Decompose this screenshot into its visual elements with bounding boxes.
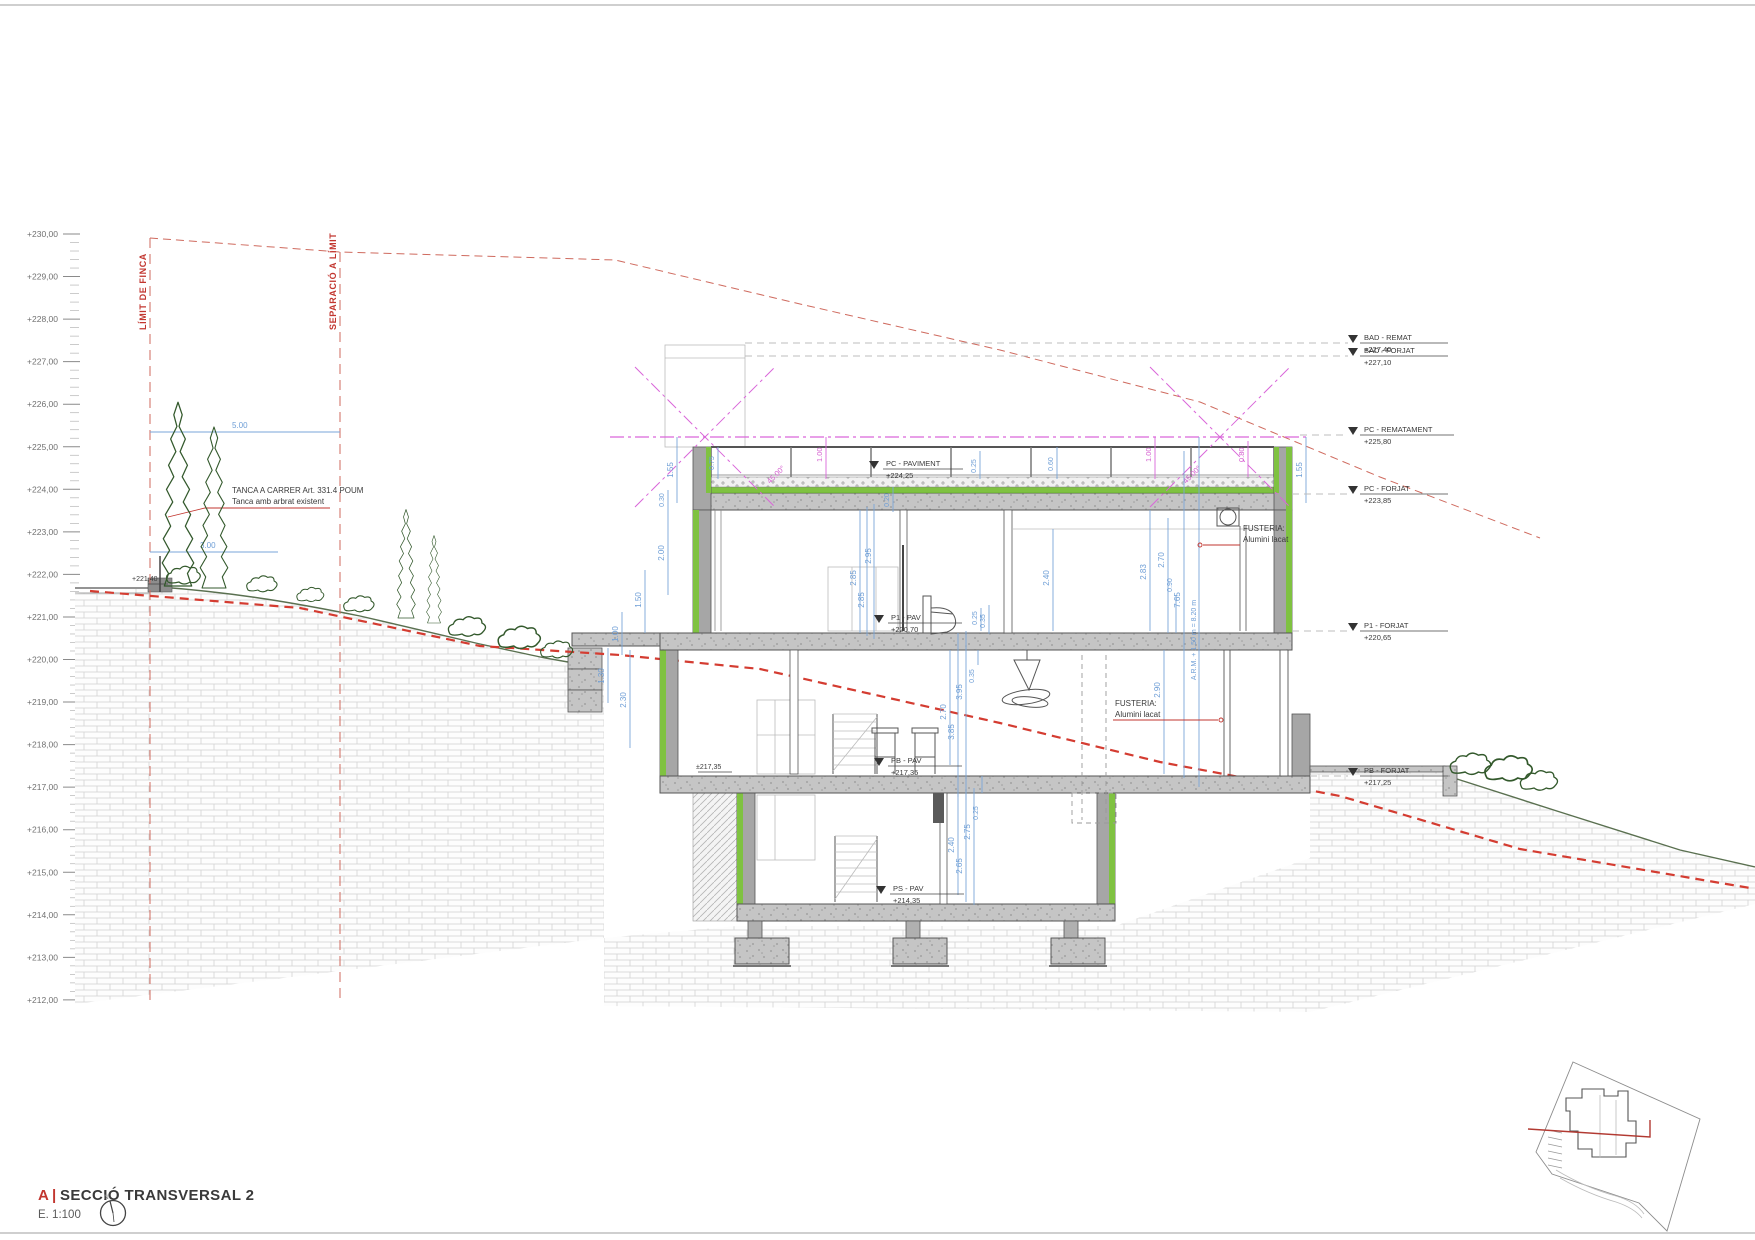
scale-label: +215,00 <box>27 867 58 877</box>
dim: 3.95 <box>955 684 964 700</box>
roof-green-layer <box>699 487 1286 493</box>
elevation-scale: +230,00+229,00+228,00+227,00+226,00+225,… <box>27 229 80 1005</box>
svg-text:BAD - REMAT: BAD - REMAT <box>1364 333 1412 342</box>
svg-text:FUSTERIA:: FUSTERIA: <box>1115 699 1157 708</box>
dim: 5.00 <box>232 421 248 430</box>
cypress-tree <box>162 402 194 586</box>
dim: 0.90 <box>1167 578 1174 592</box>
partition-bath-right <box>1004 510 1012 633</box>
scale-label: +220,00 <box>27 655 58 665</box>
dim: 1.00 <box>611 626 620 642</box>
interior <box>715 508 1288 904</box>
svg-text:+214,35: +214,35 <box>893 896 920 905</box>
beam-downstand <box>933 793 944 823</box>
annotation-pc-forjat: PC - FORJAT +223,85 <box>1348 484 1448 505</box>
earth-right <box>1310 772 1755 1012</box>
scale-label: +212,00 <box>27 995 58 1005</box>
svg-text:Alumini lacat: Alumini lacat <box>1115 710 1161 719</box>
level-marker-pb: PB - PAV +217,35 <box>874 756 962 777</box>
svg-text:PS - PAV: PS - PAV <box>893 884 924 893</box>
svg-text:BAD - FORJAT: BAD - FORJAT <box>1364 346 1415 355</box>
svg-text:+224,25: +224,25 <box>886 471 913 480</box>
scale-label: +214,00 <box>27 910 58 920</box>
svg-text:+217,35: +217,35 <box>891 768 918 777</box>
scale-label: +225,00 <box>27 442 58 452</box>
title-block: A | SECCIÓ TRANSVERSAL 2 E. 1:100 N <box>38 1186 254 1226</box>
svg-text:Alumini lacat: Alumini lacat <box>1243 535 1289 544</box>
dim: 0.25 <box>972 611 979 625</box>
closet-basement <box>757 795 815 860</box>
site-stairs <box>1548 1130 1562 1168</box>
column-p1-edge <box>1280 650 1288 776</box>
scale-label: +228,00 <box>27 314 58 324</box>
right-level-annotations: BAD - REMAT +227,40 BAD - FORJAT +227,10… <box>745 333 1454 787</box>
fusteria-note-upper: FUSTERIA: Alumini lacat <box>1198 524 1289 547</box>
dim: 3.85 <box>947 724 956 740</box>
svg-text:+223,85: +223,85 <box>1364 496 1391 505</box>
walls <box>660 447 1310 921</box>
backfill-left <box>693 793 737 921</box>
svg-text:FUSTERIA:: FUSTERIA: <box>1243 524 1285 533</box>
stairs-middle <box>833 714 877 774</box>
building-footprint <box>1566 1089 1636 1157</box>
dim: 2.90 <box>1153 682 1162 698</box>
roof-slab <box>699 493 1286 510</box>
drawing-title: SECCIÓ TRANSVERSAL 2 <box>60 1186 254 1204</box>
fusteria-note-middle: FUSTERIA: Alumini lacat <box>1113 699 1223 722</box>
drawing-tag: A <box>38 1187 49 1204</box>
dim: 2.75 <box>963 824 972 840</box>
fence-note: TANCA A CARRER Art. 331.4 POUM <box>232 486 364 495</box>
dim-pink: 0.80 <box>1237 447 1246 462</box>
dim: 2.70 <box>939 704 948 720</box>
dim: 0.75 <box>709 456 716 470</box>
dim: 2.95 <box>864 548 873 564</box>
scale-label: +226,00 <box>27 399 58 409</box>
dim-pink: 1.00 <box>815 447 824 462</box>
scale-label: +218,00 <box>27 740 58 750</box>
svg-text:+220,70: +220,70 <box>891 625 918 634</box>
drawing-canvas: +230,00+229,00+228,00+227,00+226,00+225,… <box>0 0 1755 1240</box>
scale-label: +216,00 <box>27 825 58 835</box>
closet-middle <box>757 700 815 774</box>
dim: 2.30 <box>619 692 628 708</box>
dim-arm: A.R.M. + 1.50 m = 8.20 m <box>1191 600 1198 680</box>
scale-label: +224,00 <box>27 484 58 494</box>
street <box>75 556 172 593</box>
svg-text:PC - FORJAT: PC - FORJAT <box>1364 484 1410 493</box>
slab-ps <box>737 904 1115 921</box>
dim: 2.40 <box>947 837 956 853</box>
svg-text:+217,25: +217,25 <box>1364 778 1391 787</box>
separacio-label: SEPARACIÓ A LÍMIT <box>327 233 338 330</box>
dim: 1.30 <box>597 668 606 684</box>
scale-label: +213,00 <box>27 952 58 962</box>
cypress-tree <box>200 427 228 588</box>
dim: 0.30 <box>659 493 666 507</box>
scale-label: +221,00 <box>27 612 58 622</box>
drawing-tag-separator: | <box>52 1187 56 1204</box>
roof <box>693 447 1292 510</box>
dim: 1.55 <box>1295 462 1304 478</box>
scale-label: +223,00 <box>27 527 58 537</box>
annotation-pc-rematament: PC - REMATAMENT +225,80 <box>1348 425 1454 446</box>
slab-pb <box>660 776 1310 793</box>
badalot-outline <box>665 345 745 447</box>
dim: 2.70 <box>1157 552 1166 568</box>
drawing-scale: E. 1:100 <box>38 1209 81 1221</box>
dim: 1.50 <box>634 592 643 608</box>
limit-finca-label: LÍMIT DE FINCA <box>138 253 148 330</box>
level-marker-ps: PS - PAV +214,35 <box>876 884 964 905</box>
terrace-wall <box>1443 766 1457 796</box>
dim: 0.35 <box>969 669 976 683</box>
window-upper-right <box>1217 508 1246 631</box>
dim: 1.55 <box>666 462 675 478</box>
dim-pink: 1.00 <box>1144 447 1153 462</box>
stairs-basement <box>835 836 877 902</box>
svg-text:PC - PAVIMENT: PC - PAVIMENT <box>886 459 941 468</box>
dim: 2.00 <box>657 545 666 561</box>
dim: 2.65 <box>955 858 964 874</box>
site-plan-inset <box>1528 1062 1700 1231</box>
section-cut-line <box>1528 1120 1650 1137</box>
window-middle-right <box>1224 650 1230 776</box>
scale-label: +222,00 <box>27 569 58 579</box>
annotation-p1-forjat: P1 - FORJAT +220,65 <box>1348 621 1448 642</box>
pendant-lamp <box>1001 650 1050 709</box>
dim: 0.35 <box>980 614 987 628</box>
dim: 2.83 <box>1139 564 1148 580</box>
dim: 0.20 <box>884 493 891 507</box>
dim: 0.25 <box>971 459 978 473</box>
dim: 2.85 <box>849 570 858 586</box>
svg-text:PB - PAV: PB - PAV <box>891 756 922 765</box>
dim: 7.65 <box>1173 592 1182 608</box>
svg-text:P1 - FORJAT: P1 - FORJAT <box>1364 621 1409 630</box>
fence-note: Tanca amb arbrat existent <box>232 497 325 506</box>
partition-middle <box>790 650 798 774</box>
toilet <box>923 596 956 634</box>
cypress-tree <box>427 536 442 624</box>
svg-text:PB - FORJAT: PB - FORJAT <box>1364 766 1410 775</box>
annotation-bad-forjat: BAD - FORJAT +227,10 <box>1348 346 1448 367</box>
dim: 2.40 <box>1042 570 1051 586</box>
scale-label: +227,00 <box>27 357 58 367</box>
cypress-tree <box>397 510 416 619</box>
dim: 2.85 <box>857 592 866 608</box>
svg-text:+227,10: +227,10 <box>1364 358 1391 367</box>
grade-level-label: ±217,35 <box>696 764 721 771</box>
scale-label: +230,00 <box>27 229 58 239</box>
svg-text:+220,65: +220,65 <box>1364 633 1391 642</box>
scale-label: +229,00 <box>27 272 58 282</box>
scale-label: +219,00 <box>27 697 58 707</box>
scale-label: +217,00 <box>27 782 58 792</box>
dim: 0.60 <box>1048 457 1055 471</box>
svg-text:P1 - PAV: P1 - PAV <box>891 613 921 622</box>
svg-text:+225,80: +225,80 <box>1364 437 1391 446</box>
svg-text:PC - REMATAMENT: PC - REMATAMENT <box>1364 425 1433 434</box>
street-level-label: +221,40 <box>132 576 158 583</box>
svg-text:N: N <box>104 1194 109 1201</box>
